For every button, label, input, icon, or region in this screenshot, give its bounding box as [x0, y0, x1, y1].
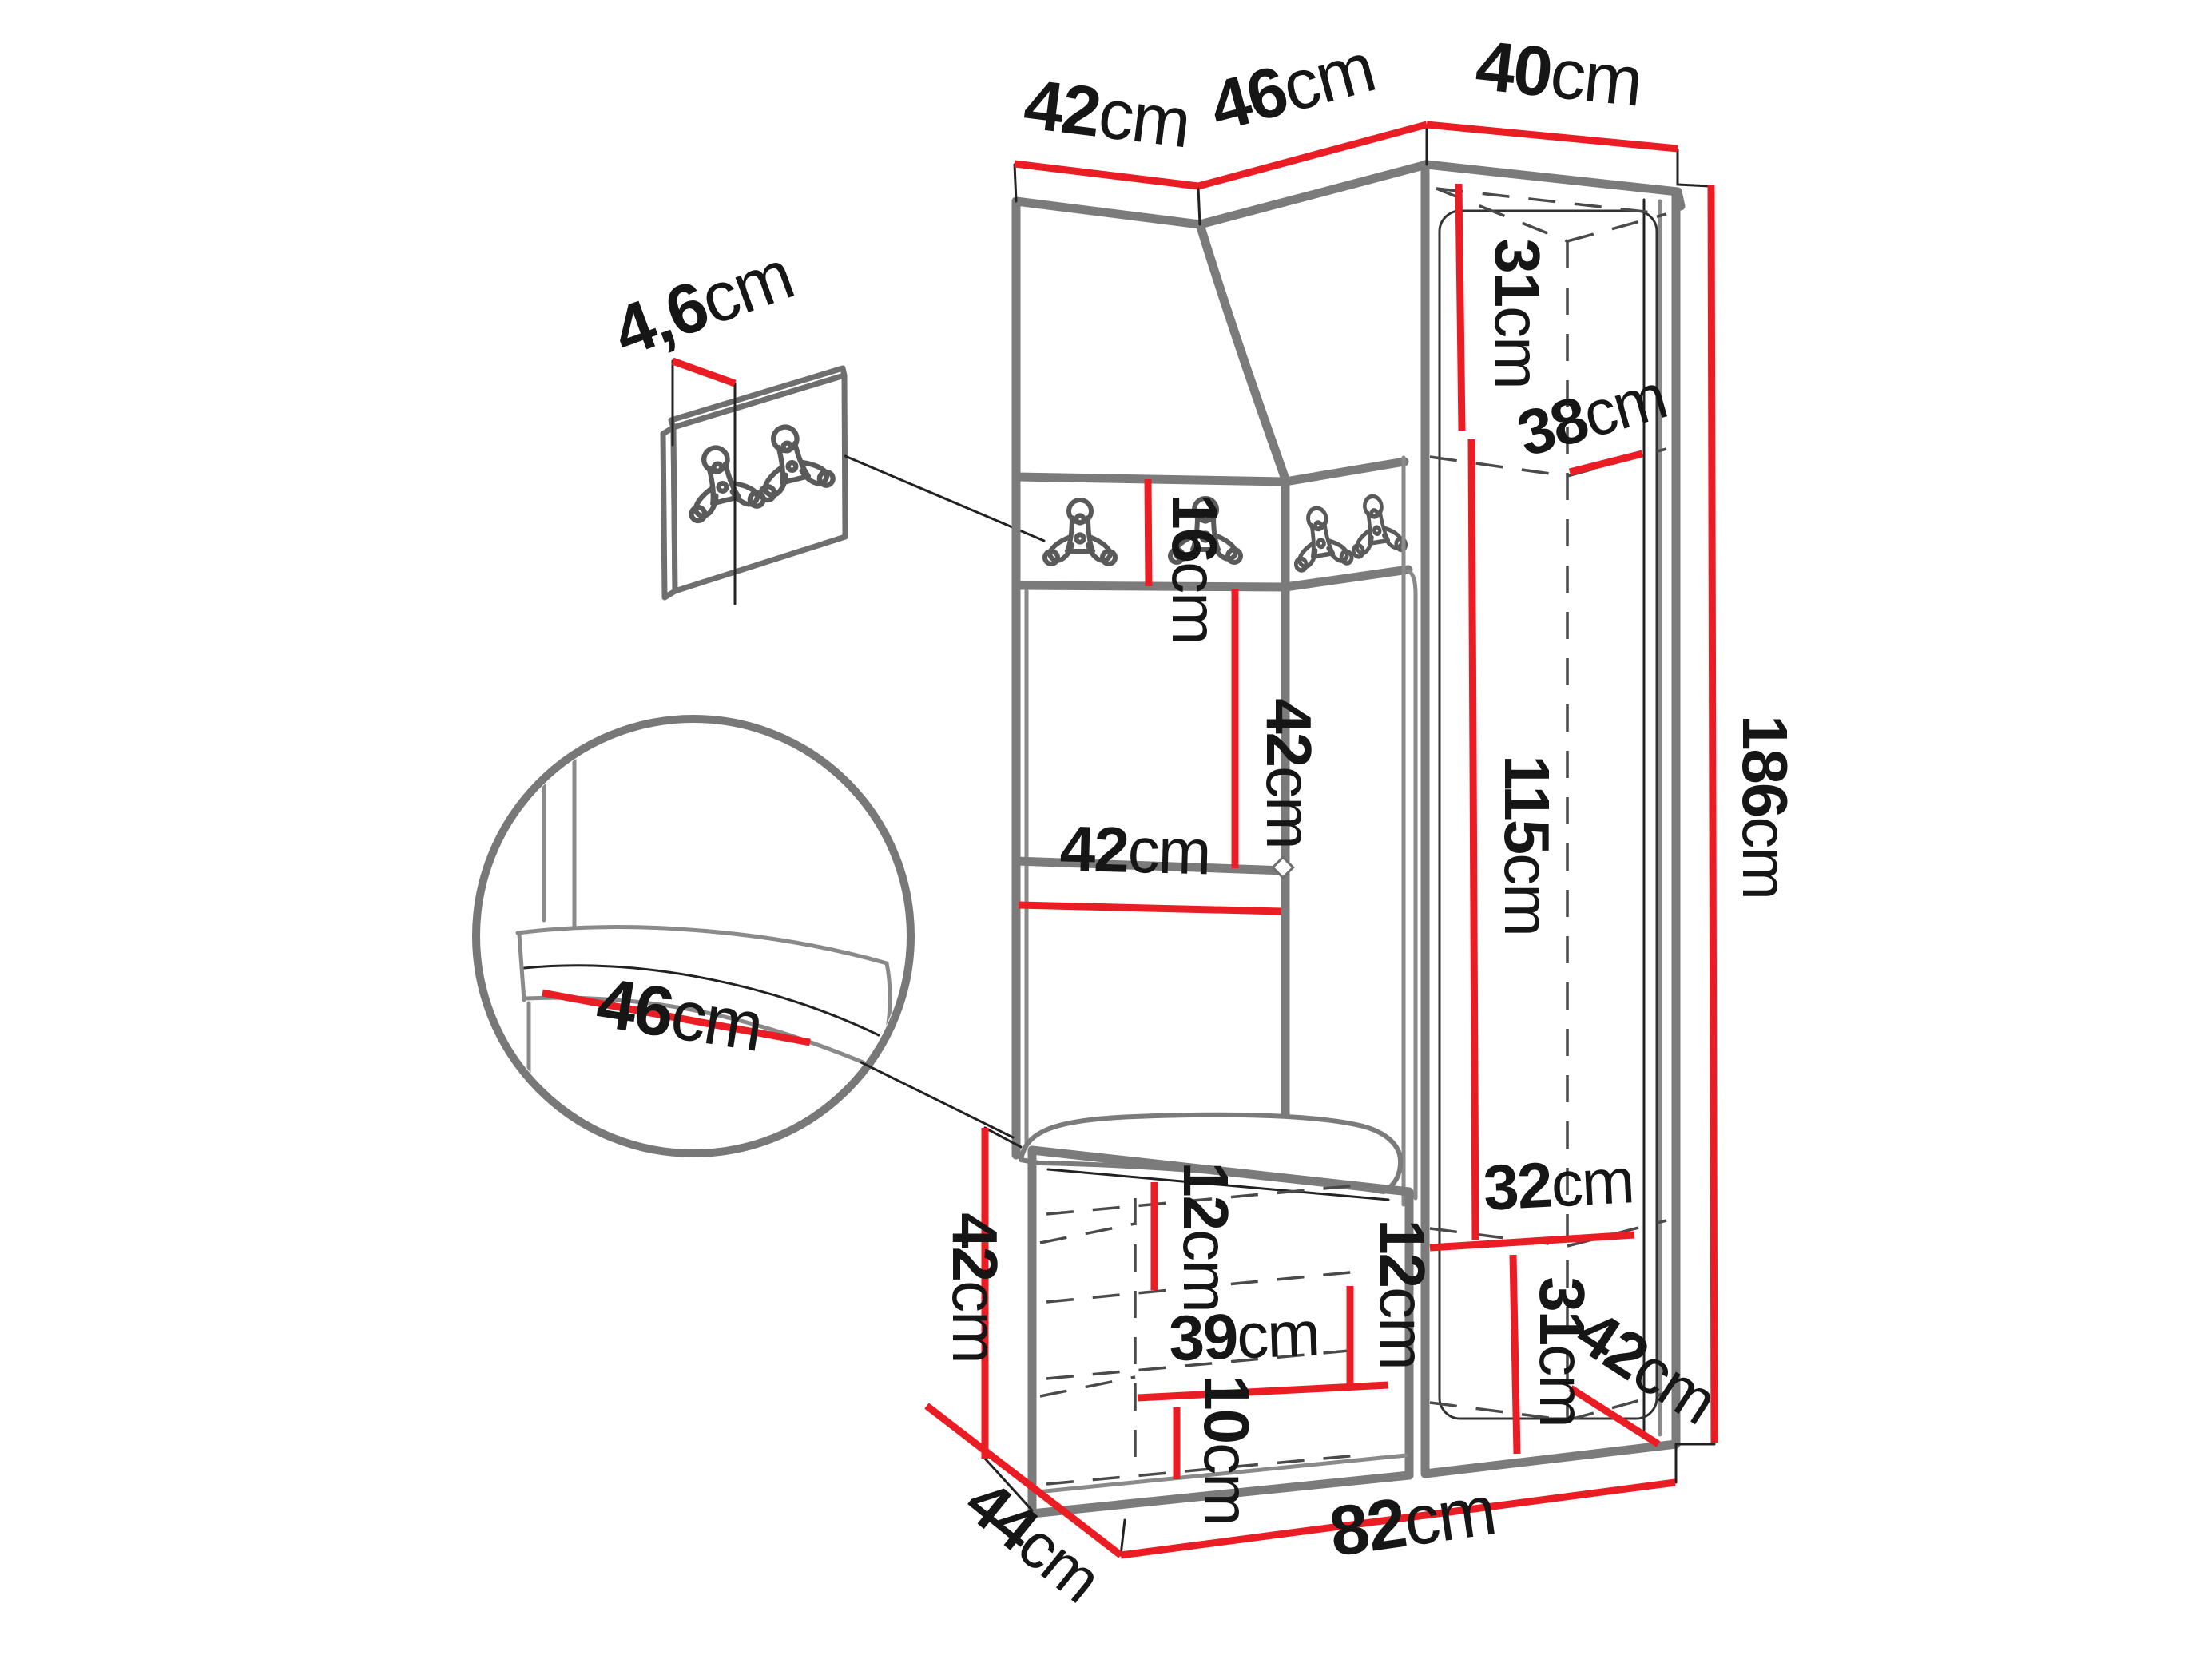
coat-hook-icon	[1045, 500, 1115, 564]
dim-line-top-width-right	[1427, 125, 1678, 149]
extension-line	[1678, 149, 1710, 186]
dim-label-top-width-left: 42cm	[1020, 64, 1194, 163]
dim-line-cabinet-depth	[1570, 454, 1642, 472]
dim-line-cabinet-top-height	[1459, 184, 1462, 431]
extension-line	[1198, 187, 1200, 224]
dim-label-bench-shelf-width: 39cm	[1168, 1298, 1320, 1374]
dim-label-hanging-height: 115cm	[1491, 755, 1563, 935]
dim-line-top-width-left	[1015, 164, 1198, 186]
hidden-edge	[1040, 1377, 1135, 1396]
diagram-canvas: 42cm 46cm 40cm 4,6cm 16cm 42cm 42cm 31cm…	[0, 0, 2212, 1659]
dim-label-cabinet-top-height: 31cm	[1482, 238, 1553, 388]
dim-line-total-height	[1711, 185, 1714, 1443]
dim-label-total-height: 186cm	[1729, 715, 1801, 899]
coat-hook-icon	[1288, 504, 1352, 571]
dim-label-bench-bottom-height: 10cm	[1191, 1375, 1262, 1525]
dim-label-hook-strip-height: 16cm	[1159, 494, 1230, 644]
dim-line-panel-thickness	[673, 361, 735, 383]
extension-line	[1121, 1520, 1125, 1555]
dim-line-cabinet-bottom-height	[1513, 1255, 1517, 1454]
coat-hook-icon	[1345, 492, 1406, 557]
dim-label-panel-thickness: 4,6cm	[603, 235, 803, 372]
furniture-dimension-drawing: 42cm 46cm 40cm 4,6cm 16cm 42cm 42cm 31cm…	[0, 0, 2212, 1659]
outline-path	[1200, 224, 1285, 479]
cabinet-bottom-edge	[1425, 1444, 1676, 1474]
dim-line-hanging-height	[1471, 439, 1475, 1240]
leader-line	[861, 1062, 1013, 1137]
dim-label-niche-height: 42cm	[1253, 698, 1324, 848]
dim-line-niche-width	[1019, 905, 1281, 911]
dim-label-niche-width: 42cm	[1059, 813, 1211, 888]
extension-line	[1015, 165, 1016, 201]
detail-back-panel-edge	[492, 725, 544, 756]
hook-panel-detail	[663, 361, 1044, 604]
hook-strip-top-edge	[1016, 462, 1404, 482]
detail-circle-ring	[476, 719, 911, 1153]
dim-line-cabinet-shelf-width	[1430, 1235, 1634, 1248]
dim-label-cabinet-shelf-width: 32cm	[1482, 1145, 1635, 1224]
outline-path	[1408, 571, 1416, 1198]
dim-label-top-width-right: 40cm	[1472, 26, 1645, 121]
dim-line-hook-strip-height	[1148, 479, 1149, 586]
dim-label-top-width-middle: 46cm	[1201, 27, 1382, 146]
hidden-edge	[1040, 1224, 1135, 1243]
dim-label-bench-height: 42cm	[939, 1212, 1011, 1363]
bench-detail-circle	[476, 719, 1013, 1153]
dim-label-bench-shelf-gap: 12cm	[1367, 1219, 1438, 1369]
dim-label-bench-top-inset: 12cm	[1170, 1161, 1241, 1312]
